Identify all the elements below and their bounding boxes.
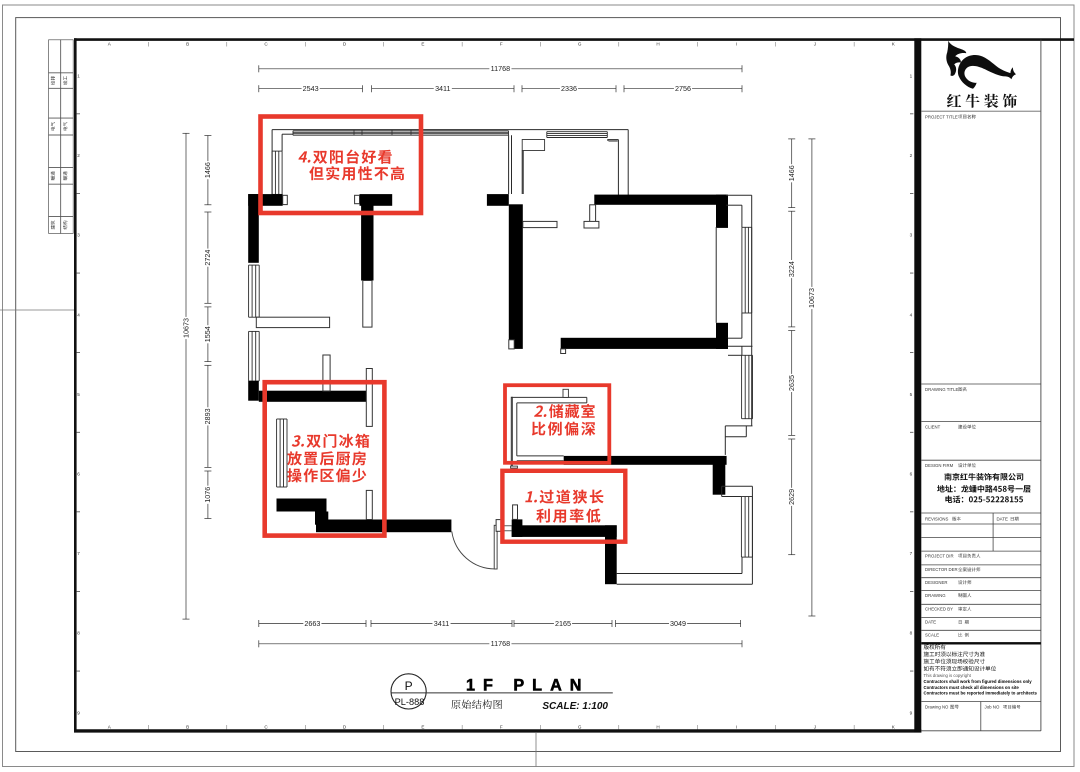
svg-text:B: B xyxy=(186,725,189,730)
svg-text:5: 5 xyxy=(77,392,80,397)
svg-text:2635: 2635 xyxy=(787,375,796,391)
svg-text:8: 8 xyxy=(77,631,80,636)
svg-text:2629: 2629 xyxy=(787,489,796,505)
svg-text:J: J xyxy=(814,725,816,730)
svg-text:G: G xyxy=(578,725,582,730)
svg-text:P: P xyxy=(405,679,413,693)
svg-text:|: | xyxy=(775,42,776,47)
svg-text:SCALE: 1:100: SCALE: 1:100 xyxy=(542,701,608,712)
svg-text:I: I xyxy=(736,42,737,47)
svg-text:1: 1 xyxy=(910,74,913,79)
svg-text:|: | xyxy=(618,725,619,730)
svg-text:|: | xyxy=(383,725,384,730)
svg-text:|: | xyxy=(461,725,462,730)
svg-text:8: 8 xyxy=(910,631,913,636)
svg-text:DIRECTOR DER: DIRECTOR DER xyxy=(925,567,958,572)
svg-text:3411: 3411 xyxy=(434,619,449,628)
svg-text:9: 9 xyxy=(77,710,80,715)
svg-text:PL-888: PL-888 xyxy=(395,697,425,707)
svg-text:3: 3 xyxy=(910,233,913,238)
svg-text:6: 6 xyxy=(910,472,913,477)
svg-text:CHECKED BY: CHECKED BY xyxy=(925,607,953,612)
svg-text:1466: 1466 xyxy=(787,165,796,181)
svg-text:10673: 10673 xyxy=(181,318,190,338)
svg-text:6: 6 xyxy=(77,472,80,477)
svg-text:|: | xyxy=(697,725,698,730)
svg-text:1F PLAN: 1F PLAN xyxy=(466,676,589,694)
svg-text:3411: 3411 xyxy=(435,84,450,93)
svg-text:E: E xyxy=(421,42,424,47)
svg-text:|: | xyxy=(383,42,384,47)
svg-text:5: 5 xyxy=(910,392,913,397)
svg-text:CLIENT: CLIENT xyxy=(925,424,941,429)
svg-text:J: J xyxy=(814,42,816,47)
svg-text:11768: 11768 xyxy=(491,639,510,648)
svg-text:|: | xyxy=(148,42,149,47)
svg-text:|: | xyxy=(853,42,854,47)
svg-text:1076: 1076 xyxy=(203,487,212,503)
svg-text:1466: 1466 xyxy=(203,162,212,178)
svg-text:2724: 2724 xyxy=(203,250,212,266)
svg-text:G: G xyxy=(578,42,582,47)
svg-text:2893: 2893 xyxy=(203,408,212,424)
svg-text:DRAWING: DRAWING xyxy=(925,593,946,598)
svg-text:Contractors shall work from fi: Contractors shall work from figured dime… xyxy=(924,679,1033,684)
svg-text:3: 3 xyxy=(77,233,80,238)
svg-text:2336: 2336 xyxy=(561,84,577,93)
svg-text:PROJECT DIR: PROJECT DIR xyxy=(925,553,954,558)
svg-text:Job NO: Job NO xyxy=(985,705,1000,710)
svg-text:Contractors must be reported i: Contractors must be reported immediately… xyxy=(924,691,1038,696)
svg-text:|: | xyxy=(461,42,462,47)
svg-text:|: | xyxy=(853,725,854,730)
svg-text:7: 7 xyxy=(910,551,913,556)
svg-text:DRAWING TITLE: DRAWING TITLE xyxy=(925,387,959,392)
svg-text:REVISIONS: REVISIONS xyxy=(925,516,949,521)
svg-text:1: 1 xyxy=(77,74,80,79)
svg-text:SCALE: SCALE xyxy=(925,633,939,638)
svg-text:F: F xyxy=(500,725,503,730)
svg-text:E: E xyxy=(421,725,424,730)
svg-text:3224: 3224 xyxy=(787,261,796,277)
svg-text:|: | xyxy=(226,42,227,47)
svg-text:4: 4 xyxy=(77,312,80,317)
svg-text:I: I xyxy=(736,725,737,730)
svg-text:This drawing is copyright: This drawing is copyright xyxy=(924,673,972,678)
svg-text:11768: 11768 xyxy=(491,64,510,73)
svg-text:PROJECT TITLE: PROJECT TITLE xyxy=(925,114,958,119)
svg-text:|: | xyxy=(305,42,306,47)
svg-text:9: 9 xyxy=(910,710,913,715)
svg-text:|: | xyxy=(305,725,306,730)
svg-text:H: H xyxy=(656,725,659,730)
svg-text:Drawing NO: Drawing NO xyxy=(925,705,949,710)
svg-text:2: 2 xyxy=(910,153,913,158)
svg-text:F: F xyxy=(500,42,503,47)
svg-text:|: | xyxy=(148,725,149,730)
svg-text:DATE: DATE xyxy=(925,620,936,625)
svg-text:DESIGN FIRM: DESIGN FIRM xyxy=(925,463,954,468)
svg-text:|: | xyxy=(618,42,619,47)
svg-text:H: H xyxy=(656,42,659,47)
svg-text:4: 4 xyxy=(910,312,913,317)
svg-text:|: | xyxy=(697,42,698,47)
svg-text:DATE: DATE xyxy=(997,516,1008,521)
svg-text:7: 7 xyxy=(77,551,80,556)
svg-text:2: 2 xyxy=(77,153,80,158)
svg-text:|: | xyxy=(540,725,541,730)
svg-text:2756: 2756 xyxy=(675,84,691,93)
svg-text:3049: 3049 xyxy=(670,619,686,628)
svg-text:1554: 1554 xyxy=(203,326,212,342)
svg-text:2663: 2663 xyxy=(304,619,320,628)
svg-text:10673: 10673 xyxy=(807,288,816,308)
svg-text:2165: 2165 xyxy=(555,619,571,628)
svg-text:B: B xyxy=(186,42,189,47)
svg-text:2543: 2543 xyxy=(303,84,319,93)
svg-text:|: | xyxy=(540,42,541,47)
svg-text:|: | xyxy=(226,725,227,730)
svg-text:|: | xyxy=(775,725,776,730)
svg-text:Contractors must check all dim: Contractors must check all dimensions on… xyxy=(924,685,1020,690)
svg-text:DESIGNER: DESIGNER xyxy=(925,580,947,585)
